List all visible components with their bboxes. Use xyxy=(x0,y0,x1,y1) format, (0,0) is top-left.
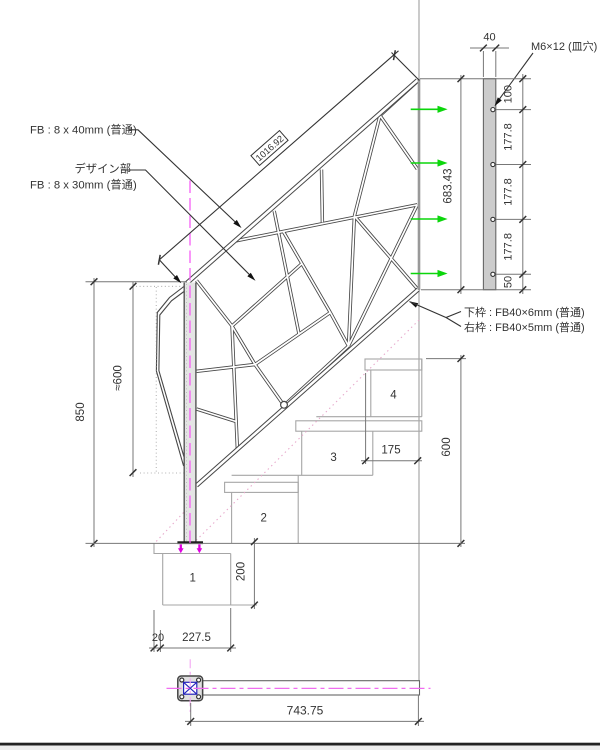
svg-text:20: 20 xyxy=(152,632,164,644)
svg-text:227.5: 227.5 xyxy=(182,632,211,644)
svg-text:4: 4 xyxy=(390,390,397,402)
svg-text:175: 175 xyxy=(381,445,400,457)
svg-text:40: 40 xyxy=(483,32,495,44)
svg-text:3: 3 xyxy=(330,452,336,464)
svg-text:≈600: ≈600 xyxy=(113,365,125,391)
svg-text:FB : 8 x 40mm (普通): FB : 8 x 40mm (普通) xyxy=(30,123,137,137)
svg-text:600: 600 xyxy=(441,437,453,456)
svg-text:FB : 8 x 30mm (普通): FB : 8 x 30mm (普通) xyxy=(30,178,137,192)
svg-text:177.8: 177.8 xyxy=(502,178,514,206)
svg-text:683.43: 683.43 xyxy=(443,168,455,203)
svg-text:50: 50 xyxy=(502,276,514,288)
svg-text:743.75: 743.75 xyxy=(287,704,324,718)
svg-text:177.8: 177.8 xyxy=(502,233,514,261)
svg-text:177.8: 177.8 xyxy=(502,123,514,151)
svg-text:2: 2 xyxy=(260,513,266,525)
svg-text:右枠 : FB40×5mm (普通): 右枠 : FB40×5mm (普通) xyxy=(464,320,585,334)
svg-text:デザイン部: デザイン部 xyxy=(75,162,132,176)
svg-text:M6×12 (皿穴): M6×12 (皿穴) xyxy=(531,39,597,53)
svg-text:200: 200 xyxy=(235,562,247,581)
svg-text:100: 100 xyxy=(502,85,514,103)
svg-text:1: 1 xyxy=(189,573,195,585)
svg-text:850: 850 xyxy=(75,402,87,421)
svg-text:下枠 : FB40×6mm (普通): 下枠 : FB40×6mm (普通) xyxy=(464,305,585,319)
